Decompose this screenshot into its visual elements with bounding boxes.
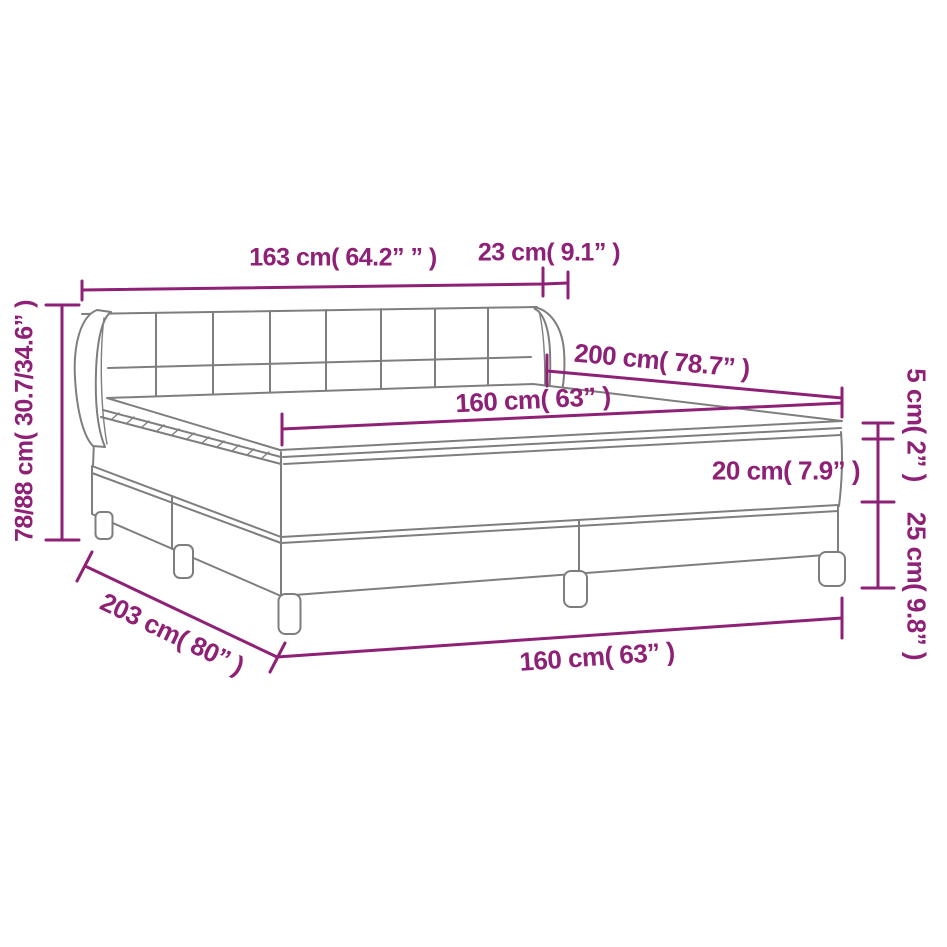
dim-label-topper-height: 5 cm( 2” ): [901, 368, 932, 482]
leg-4: [564, 571, 587, 607]
base-foot-face: [281, 505, 838, 596]
dim-label-headboard-width: 163 cm( 64.2” ” ): [249, 244, 436, 273]
headboard-left-wing: [75, 310, 111, 447]
dim-label-base-height: 25 cm( 9.8” ): [901, 512, 932, 660]
dim-label-wing-depth: 23 cm( 9.1” ): [478, 239, 620, 268]
leg-1: [96, 512, 113, 539]
leg-5: [819, 552, 845, 586]
dimension-diagram: 163 cm( 64.2” ” ) 23 cm( 9.1” ) 78/88 cm…: [0, 0, 947, 947]
dim-label-mattress-height: 20 cm( 7.9” ): [712, 456, 860, 487]
dim-label-bed-height: 78/88 cm( 30.7/34.6” ): [11, 300, 40, 542]
headboard-mid-seam: [108, 357, 531, 368]
dim-line-headboard-width: [82, 283, 568, 290]
headboard-top-edge: [82, 307, 537, 314]
leg-2: [174, 545, 193, 578]
leg-3: [279, 594, 301, 634]
